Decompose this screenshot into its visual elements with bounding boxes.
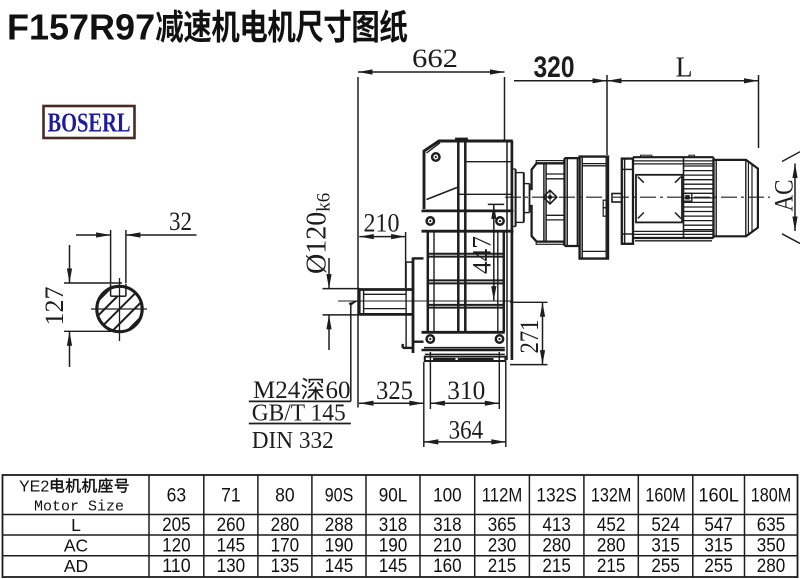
svg-text:127: 127	[40, 287, 69, 326]
svg-text:230: 230	[488, 535, 517, 557]
svg-text:547: 547	[704, 514, 733, 536]
svg-text:160L: 160L	[698, 485, 739, 507]
svg-text:AD: AD	[64, 556, 88, 576]
svg-text:320: 320	[534, 51, 575, 84]
svg-text:63: 63	[167, 485, 187, 507]
svg-text:635: 635	[757, 514, 786, 536]
svg-text:271: 271	[515, 320, 544, 354]
svg-text:YE2: YE2	[19, 479, 49, 496]
svg-text:L: L	[676, 53, 693, 84]
svg-text:145: 145	[217, 535, 246, 557]
svg-text:310: 310	[447, 376, 485, 405]
svg-text:170: 170	[271, 535, 300, 557]
svg-text:662: 662	[412, 44, 458, 73]
svg-text:AC: AC	[770, 180, 799, 212]
svg-text:452: 452	[597, 514, 626, 536]
svg-text:288: 288	[325, 514, 354, 536]
svg-text:32: 32	[169, 207, 192, 236]
svg-text:260: 260	[217, 514, 246, 536]
svg-text:AC: AC	[64, 536, 88, 556]
svg-text:160M: 160M	[645, 485, 686, 507]
svg-text:110: 110	[162, 555, 191, 577]
svg-text:180M: 180M	[751, 485, 792, 507]
svg-text:318: 318	[433, 514, 462, 536]
svg-text:135: 135	[271, 555, 300, 577]
svg-text:215: 215	[597, 555, 626, 577]
svg-text:413: 413	[542, 514, 571, 536]
svg-text:145: 145	[379, 555, 408, 577]
svg-text:215: 215	[542, 555, 571, 577]
svg-text:120: 120	[162, 535, 191, 557]
svg-text:280: 280	[271, 514, 300, 536]
svg-text:Motor Size: Motor Size	[34, 499, 124, 516]
svg-text:100: 100	[433, 485, 462, 507]
svg-text:71: 71	[221, 485, 241, 507]
svg-text:325: 325	[376, 376, 413, 405]
svg-text:215: 215	[488, 555, 517, 577]
svg-text:350: 350	[757, 535, 786, 557]
svg-text:210: 210	[433, 535, 462, 557]
svg-text:255: 255	[651, 555, 680, 577]
svg-text:280: 280	[757, 555, 786, 577]
svg-text:90L: 90L	[379, 485, 408, 507]
svg-text:447: 447	[468, 236, 497, 274]
svg-text:90S: 90S	[325, 485, 354, 507]
svg-text:DIN 332: DIN 332	[252, 427, 334, 454]
svg-text:255: 255	[704, 555, 733, 577]
svg-text:190: 190	[325, 535, 354, 557]
svg-text:GB/T 145: GB/T 145	[252, 399, 346, 426]
svg-text:132M: 132M	[591, 485, 632, 507]
svg-text:190: 190	[379, 535, 408, 557]
svg-text:318: 318	[379, 514, 408, 536]
svg-text:BOSERL: BOSERL	[48, 108, 131, 138]
svg-text:80: 80	[275, 485, 295, 507]
svg-text:315: 315	[651, 535, 680, 557]
svg-text:280: 280	[597, 535, 626, 557]
svg-text:112M: 112M	[482, 485, 523, 507]
svg-text:524: 524	[651, 514, 680, 536]
svg-text:160: 160	[433, 555, 462, 577]
svg-text:364: 364	[449, 415, 484, 444]
svg-text:210: 210	[364, 209, 400, 238]
svg-text:130: 130	[217, 555, 246, 577]
svg-text:280: 280	[542, 535, 571, 557]
svg-text:L: L	[71, 515, 81, 535]
svg-text:F157R97: F157R97	[7, 7, 155, 48]
svg-text:145: 145	[325, 555, 354, 577]
svg-text:365: 365	[488, 514, 517, 536]
svg-text:132S: 132S	[536, 485, 577, 507]
svg-text:315: 315	[704, 535, 733, 557]
svg-text:205: 205	[162, 514, 191, 536]
